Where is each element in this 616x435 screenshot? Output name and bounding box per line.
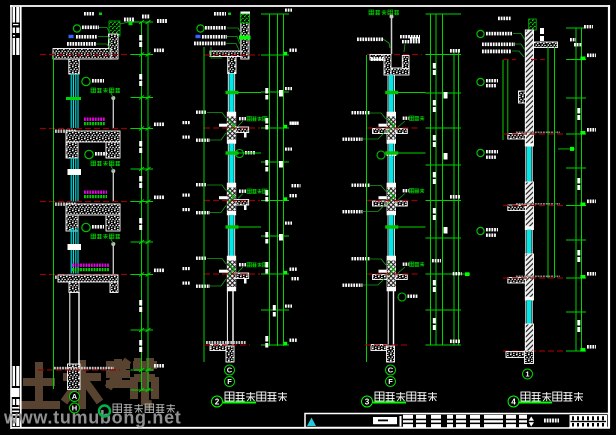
svg-text:2: 2 [215, 398, 220, 407]
svg-text:C: C [388, 366, 394, 375]
svg-text:3: 3 [365, 398, 370, 407]
svg-text:A: A [72, 392, 78, 401]
svg-text:4: 4 [511, 398, 516, 407]
svg-text:www.tumubong.net: www.tumubong.net [3, 408, 182, 428]
svg-text:F: F [388, 377, 393, 386]
svg-text:1: 1 [525, 370, 529, 379]
svg-text:F: F [227, 377, 232, 386]
svg-text:C: C [227, 366, 233, 375]
